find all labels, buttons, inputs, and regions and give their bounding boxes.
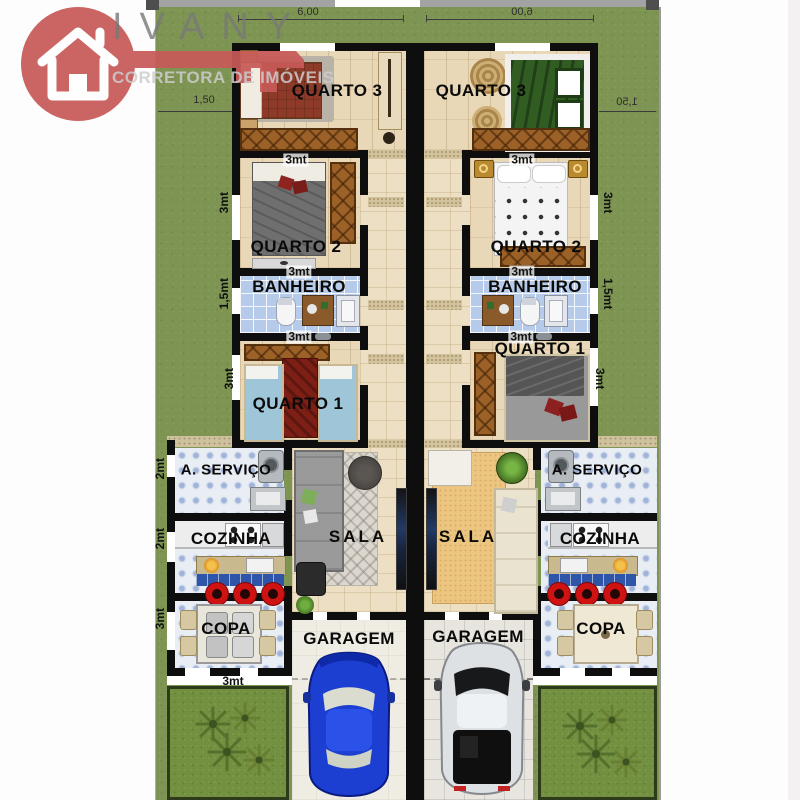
wall xyxy=(462,150,470,195)
door-mat xyxy=(424,150,462,159)
bushes-right xyxy=(546,694,654,794)
wall xyxy=(360,385,368,448)
dim-front-width-right: 6,00 xyxy=(511,6,532,18)
window xyxy=(612,668,630,676)
dim-setback-right: 1,50 xyxy=(616,96,637,108)
dim-line xyxy=(599,111,656,112)
window xyxy=(232,195,240,240)
garage-door-gap xyxy=(313,612,327,620)
label-sala-right: SALA xyxy=(439,527,497,547)
sofa-right xyxy=(494,488,538,614)
dim-3mt: 3mt xyxy=(509,154,534,167)
desk-chair xyxy=(296,562,326,596)
label-servico-right: A. SERVIÇO xyxy=(552,462,642,479)
door-mat xyxy=(426,300,462,310)
wall xyxy=(360,326,368,350)
window xyxy=(590,195,598,240)
bushes-left xyxy=(175,694,283,794)
floor-plan-canvas: 6,00 6,00 1,50 1,50 xyxy=(0,0,800,800)
chair xyxy=(180,610,197,630)
wall xyxy=(462,385,470,448)
label-quarto3-right: QUARTO 3 xyxy=(436,81,527,101)
dim-3mt-v: 3mt xyxy=(222,368,236,389)
door-mat xyxy=(424,440,462,448)
dim-3mt: 3mt xyxy=(286,266,311,279)
food-plate xyxy=(613,558,628,573)
label-banheiro-right: BANHEIRO xyxy=(488,277,582,297)
chair xyxy=(557,636,574,656)
chair xyxy=(557,610,574,630)
toilet xyxy=(520,297,540,326)
dim-1-5mt-v: 1,5mt xyxy=(217,278,231,309)
door-mat xyxy=(368,440,406,448)
island-sink xyxy=(560,558,588,573)
island-sink xyxy=(246,558,274,573)
stool xyxy=(548,583,570,605)
dim-3mt-v: 3mt xyxy=(217,192,231,213)
stool xyxy=(234,583,256,605)
toilet xyxy=(276,297,296,326)
door-mat xyxy=(368,197,404,207)
dim-3mt: 3mt xyxy=(286,331,311,344)
wardrobe xyxy=(330,162,356,244)
label-sala-left: SALA xyxy=(329,527,387,547)
window xyxy=(167,532,175,562)
fixture-icon xyxy=(315,333,331,340)
label-garagem-left: GARAGEM xyxy=(303,629,395,649)
wall xyxy=(462,326,470,350)
nightstand xyxy=(474,160,494,178)
sofa-pillow xyxy=(303,509,318,524)
window xyxy=(560,668,585,676)
wall xyxy=(327,612,357,620)
door-mat xyxy=(368,150,406,159)
sofa-pillow xyxy=(301,489,318,506)
dim-3mt-v: 3mt xyxy=(153,608,167,629)
wardrobe xyxy=(472,128,590,151)
wall xyxy=(284,586,292,676)
stool xyxy=(206,583,228,605)
tv-panel xyxy=(426,488,437,590)
shower-box xyxy=(544,295,568,327)
window xyxy=(185,668,210,676)
dim-3mt: 3mt xyxy=(222,674,243,688)
patio-strip-right xyxy=(598,436,657,447)
dim-tick xyxy=(403,15,404,22)
label-servico-left: A. SERVIÇO xyxy=(181,462,271,479)
party-wall xyxy=(406,43,424,800)
wall xyxy=(533,668,657,676)
wall xyxy=(424,612,445,620)
selection-bar xyxy=(420,0,656,7)
dim-1-5mt-v: 1,5mt xyxy=(601,278,615,309)
wall xyxy=(533,513,657,521)
floor-lamp xyxy=(383,132,395,144)
dim-line xyxy=(426,19,594,20)
dim-2mt-v: 2mt xyxy=(153,458,167,479)
tv-panel xyxy=(396,488,407,590)
stool xyxy=(604,583,626,605)
bed-cushion xyxy=(559,404,578,421)
chair xyxy=(636,610,653,630)
label-garagem-right: GARAGEM xyxy=(432,627,524,647)
door-mat xyxy=(368,300,404,310)
bed-cushion xyxy=(292,180,308,195)
fixture-icon xyxy=(536,333,552,340)
right-margin-shade xyxy=(788,0,800,800)
chair xyxy=(180,636,197,656)
side-table xyxy=(428,450,472,486)
label-copa-left: COPA xyxy=(201,619,250,639)
wardrobe xyxy=(240,128,358,151)
bathroom-vanity xyxy=(302,295,334,326)
stool xyxy=(262,583,284,605)
wall xyxy=(360,150,368,195)
bathroom-vanity xyxy=(482,295,514,326)
label-quarto1-left: QUARTO 1 xyxy=(253,394,344,414)
chair xyxy=(259,636,276,656)
wall xyxy=(167,513,292,521)
label-quarto2-left: QUARTO 2 xyxy=(251,237,342,257)
dim-3mt: 3mt xyxy=(508,331,533,344)
dim-3mt-v: 3mt xyxy=(601,192,615,213)
window xyxy=(167,455,175,477)
dim-3mt: 3mt xyxy=(509,266,534,279)
label-cozinha-left: COZINHA xyxy=(191,529,271,549)
dim-3mt: 3mt xyxy=(283,154,308,167)
window xyxy=(167,612,175,650)
car-blue xyxy=(303,648,395,798)
brand-tagline: CORRETORA DE IMÓVEIS xyxy=(112,68,335,88)
plant xyxy=(296,596,314,614)
chair xyxy=(259,610,276,630)
stool xyxy=(576,583,598,605)
wall xyxy=(459,612,489,620)
dim-tick xyxy=(593,15,594,22)
house-door-icon xyxy=(69,74,87,96)
patio-strip-left xyxy=(167,436,232,447)
door-mat xyxy=(368,354,404,364)
car-silver xyxy=(434,638,530,796)
window xyxy=(590,288,598,314)
sofa-pillow xyxy=(501,497,518,514)
wall xyxy=(462,225,470,296)
window xyxy=(232,288,240,314)
window xyxy=(495,43,550,51)
laundry-sink xyxy=(545,487,581,511)
label-copa-right: COPA xyxy=(576,619,625,639)
chair xyxy=(636,636,653,656)
wall xyxy=(533,440,541,470)
brand-name: IVANY xyxy=(112,6,308,49)
label-banheiro-left: BANHEIRO xyxy=(252,277,346,297)
bed-quarto1-right xyxy=(504,354,590,442)
food-plate xyxy=(204,558,219,573)
wall xyxy=(284,440,292,470)
dim-tick xyxy=(426,15,427,22)
wardrobe xyxy=(474,352,496,436)
pouf xyxy=(348,456,382,490)
nightstand xyxy=(568,160,588,178)
sill xyxy=(533,676,657,685)
plant xyxy=(496,452,528,484)
door-mat xyxy=(426,197,462,207)
dim-2mt-v: 2mt xyxy=(153,528,167,549)
dim-3mt-v: 3mt xyxy=(593,368,607,389)
garage-door-gap xyxy=(357,612,370,620)
wall xyxy=(360,225,368,296)
garage-door-gap xyxy=(445,612,459,620)
shower-box xyxy=(336,295,360,327)
label-cozinha-right: COZINHA xyxy=(560,529,640,549)
door-mat xyxy=(426,354,462,364)
laundry-sink xyxy=(250,487,286,511)
sofa-left xyxy=(294,450,344,572)
wall xyxy=(370,612,406,620)
selection-handle[interactable] xyxy=(646,0,659,10)
label-quarto2-right: QUARTO 2 xyxy=(491,237,582,257)
